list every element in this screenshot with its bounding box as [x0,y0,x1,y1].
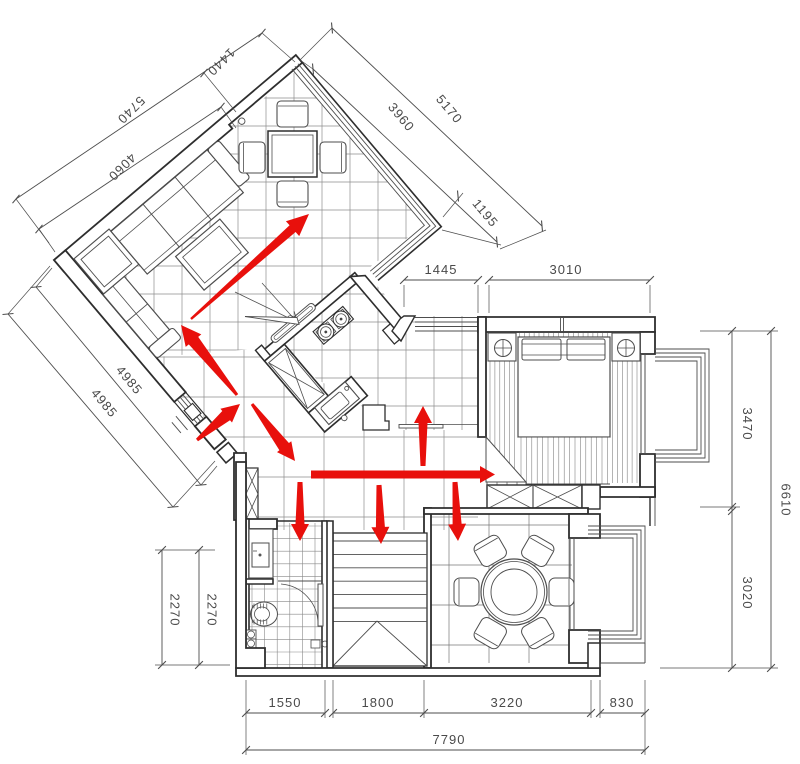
svg-text:3220: 3220 [491,695,524,710]
svg-text:3470: 3470 [740,408,755,441]
svg-text:1800: 1800 [362,695,395,710]
svg-text:1445: 1445 [425,262,458,277]
svg-text:830: 830 [610,695,635,710]
svg-text:1550: 1550 [269,695,302,710]
svg-text:3020: 3020 [740,577,755,610]
svg-text:2270: 2270 [168,594,183,627]
svg-text:7790: 7790 [433,732,466,747]
svg-text:6610: 6610 [779,484,794,517]
svg-text:3010: 3010 [550,262,583,277]
svg-text:2270: 2270 [205,594,220,627]
